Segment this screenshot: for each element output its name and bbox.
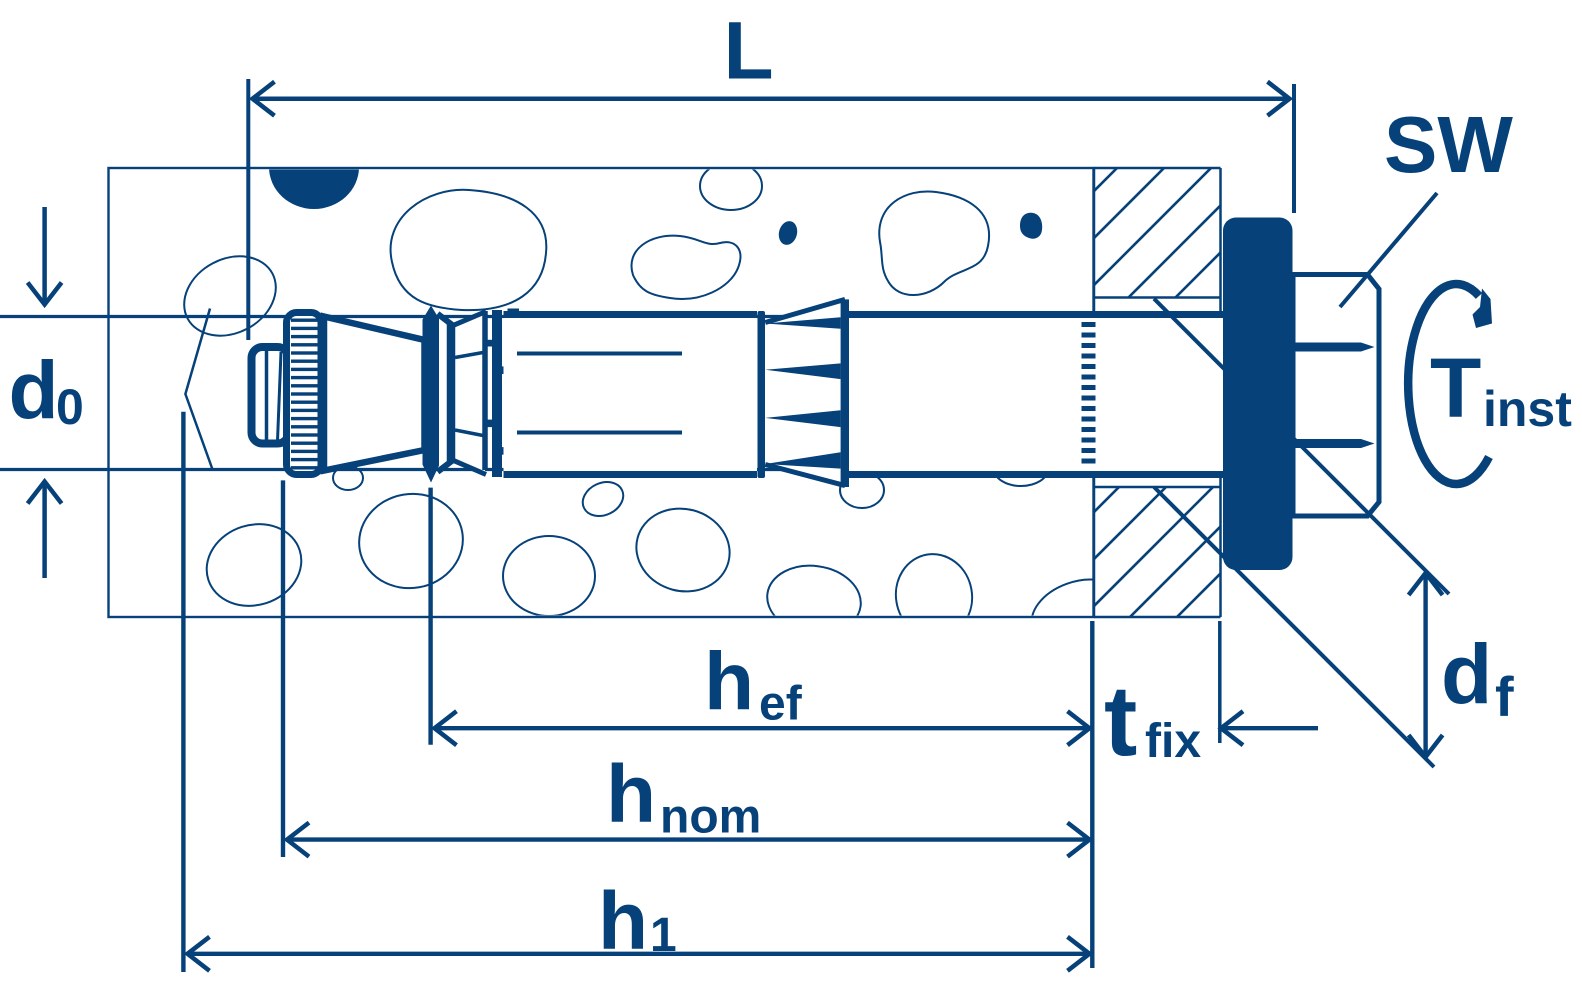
svg-text:h: h xyxy=(598,876,648,967)
svg-text:1: 1 xyxy=(650,909,677,962)
svg-text:d: d xyxy=(1441,628,1492,722)
svg-text:ef: ef xyxy=(759,678,803,731)
svg-text:d: d xyxy=(9,346,59,437)
svg-text:h: h xyxy=(606,749,656,840)
svg-text:0: 0 xyxy=(56,379,84,435)
svg-text:fix: fix xyxy=(1145,715,1201,768)
svg-text:inst: inst xyxy=(1483,381,1572,437)
svg-text:T: T xyxy=(1430,341,1481,435)
svg-text:SW: SW xyxy=(1384,100,1513,189)
svg-text:nom: nom xyxy=(660,791,761,844)
svg-text:t: t xyxy=(1104,665,1137,777)
svg-text:L: L xyxy=(724,5,774,96)
svg-text:f: f xyxy=(1495,665,1514,728)
svg-text:h: h xyxy=(704,637,754,728)
